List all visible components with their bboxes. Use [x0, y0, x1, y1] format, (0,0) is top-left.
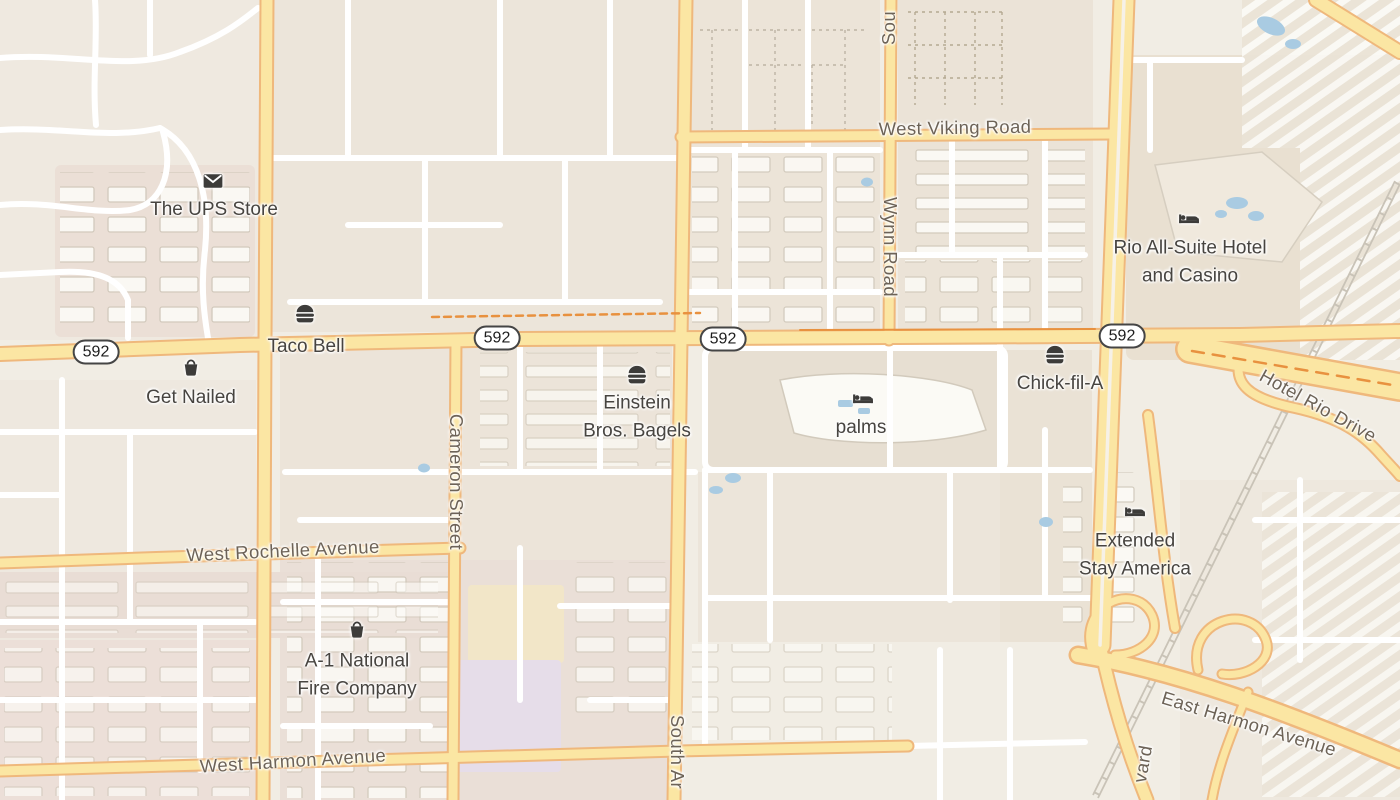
fast-food-icon — [625, 363, 650, 388]
poi-label-taco-bell: Taco Bell — [267, 333, 344, 361]
poi-label-line: Extended — [1079, 527, 1191, 555]
street-label-south-arville-partial: South Ar — [666, 715, 688, 789]
poi-label-extended-stay-america: Extended Stay America — [1079, 527, 1191, 582]
mail-icon — [201, 169, 226, 194]
poi-label-palms: palms — [836, 414, 887, 442]
route-shield-592: 592 — [73, 340, 120, 365]
lodging-bed-icon — [1177, 206, 1202, 231]
map-canvas[interactable]: 592 592 592 592 West Viking Road Wynn Ro… — [0, 0, 1400, 800]
route-shield-592: 592 — [474, 326, 521, 351]
poi-label-chick-fil-a: Chick-fil-A — [1017, 370, 1104, 398]
fast-food-icon — [293, 302, 318, 327]
poi-label-einstein-bros-bagels: Einstein Bros. Bagels — [583, 389, 691, 444]
street-label-cameron-street: Cameron Street — [445, 414, 467, 550]
shop-basket-icon — [179, 355, 204, 380]
lodging-bed-icon — [1123, 499, 1148, 524]
poi-label-line: A-1 National — [297, 647, 416, 675]
street-label-wynn-road: Wynn Road — [879, 197, 901, 297]
lodging-bed-icon — [851, 386, 876, 411]
poi-label-line: Bros. Bagels — [583, 417, 691, 445]
poi-label-a1-national-fire-company: A-1 National Fire Company — [297, 647, 416, 702]
poi-label-line: Fire Company — [297, 675, 416, 703]
fast-food-icon — [1043, 343, 1068, 368]
street-label-south-partial: Sou — [878, 11, 900, 45]
poi-label-rio-all-suite-hotel: Rio All-Suite Hotel and Casino — [1113, 234, 1266, 289]
poi-label-line: Rio All-Suite Hotel — [1113, 234, 1266, 262]
poi-label-get-nailed: Get Nailed — [146, 384, 236, 412]
route-shield-592: 592 — [1099, 324, 1146, 349]
poi-label-line: and Casino — [1113, 262, 1266, 290]
route-shield-592: 592 — [700, 327, 747, 352]
shop-basket-icon — [345, 617, 370, 642]
poi-label-the-ups-store: The UPS Store — [150, 196, 278, 224]
poi-label-line: Stay America — [1079, 555, 1191, 583]
street-label-west-viking-road: West Viking Road — [878, 116, 1031, 141]
poi-label-line: Einstein — [583, 389, 691, 417]
